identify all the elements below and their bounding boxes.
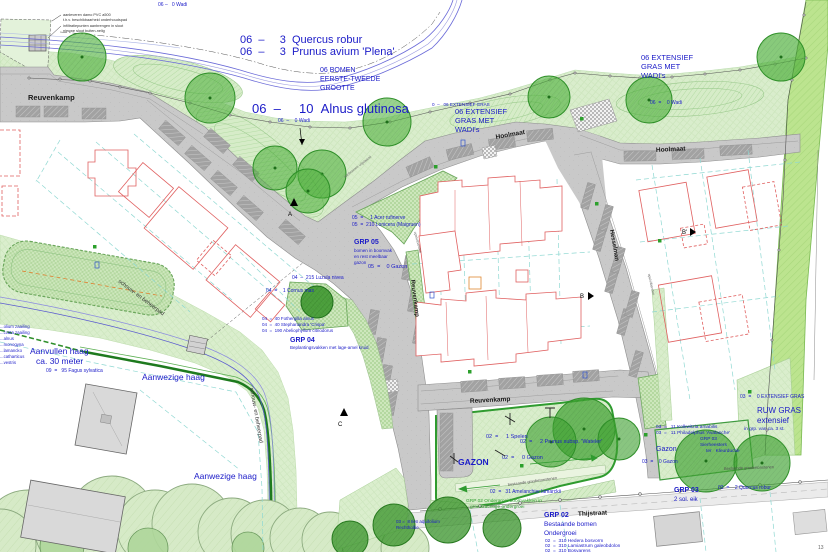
svg-text:GRAS MET: GRAS MET — [455, 116, 495, 125]
svg-text:Reuvenkamp: Reuvenkamp — [28, 93, 75, 102]
svg-text:gazon: gazon — [354, 260, 367, 265]
svg-text:...alnus: ...alnus — [0, 336, 14, 341]
svg-text:06 EXTENSIEF: 06 EXTENSIEF — [641, 53, 694, 62]
svg-text:...monogyna: ...monogyna — [0, 342, 24, 347]
svg-text:06 = 0 Wadi: 06 = 0 Wadi — [650, 100, 682, 106]
svg-text:09 = 95 Fagus sylvatica: 09 = 95 Fagus sylvatica — [46, 368, 103, 374]
svg-text:GRAS MET: GRAS MET — [641, 62, 681, 71]
svg-text:04 = 190 Abeliophyllum citri: 04 = 190 Abeliophyllum citriodorus — [262, 328, 334, 333]
svg-text:...vestris: ...vestris — [0, 360, 16, 365]
svg-text:06 – 3 Quercus robur: 06 – 3 Quercus robur — [240, 34, 363, 46]
svg-text:...ccata zaailing: ...ccata zaailing — [0, 330, 30, 335]
svg-text:03 = 11 Kolkwitzia amabilis: 03 = 11 Kolkwitzia amabilis — [656, 424, 718, 430]
svg-text:extensief: extensief — [757, 416, 790, 425]
svg-text:ca. 30 meter: ca. 30 meter — [36, 356, 83, 366]
svg-text:02 = 2 Prunus subsp. 'Wat: 02 = 2 Prunus subsp. 'Wateler' — [520, 439, 602, 445]
svg-text:03 = 11 Philadelphus 'Avala: 03 = 11 Philadelphus 'Avalanche' — [656, 430, 730, 436]
svg-text:Bestaande bomen: Bestaande bomen — [544, 521, 597, 528]
svg-text:Gazon: Gazon — [656, 446, 677, 453]
svg-text:GRP 02 Ondergroei boomvakken i: GRP 02 Ondergroei boomvakken in — [466, 498, 542, 504]
svg-text:06 – 0 Wadi: 06 – 0 Wadi — [278, 118, 310, 124]
svg-text:06 EXTENSIEF: 06 EXTENSIEF — [455, 107, 508, 116]
svg-text:B: B — [580, 294, 584, 300]
svg-text:03 = 0 EXTENSIEF GRAS: 03 = 0 EXTENSIEF GRAS — [740, 394, 805, 400]
svg-text:GRP 05: GRP 05 — [354, 239, 379, 246]
svg-text:13: 13 — [818, 545, 824, 551]
svg-text:06 – 10 Alnus glutinosa: 06 – 10 Alnus glutinosa — [252, 101, 410, 116]
svg-text:GROOTTE: GROOTTE — [320, 85, 355, 92]
svg-text:02 = 31 Amelanchier lamarck: 02 = 31 Amelanchier lamarckii — [490, 489, 561, 495]
svg-text:WADI's: WADI's — [455, 125, 480, 134]
svg-text:nieuwe sloot buiten-nelig: nieuwe sloot buiten-nelig — [63, 29, 105, 33]
svg-text:03 = 8 Ilex aquifolium: 03 = 8 Ilex aquifolium — [396, 519, 440, 524]
svg-text:A: A — [288, 212, 292, 218]
svg-text:06 – 0 Wadi: 06 – 0 Wadi — [158, 2, 187, 8]
svg-text:t.h.v. beschikbaarheid onderho: t.h.v. beschikbaarheid onderhoudspad — [63, 18, 127, 22]
svg-text:04 – 215 Luzula nivea: 04 – 215 Luzula nivea — [292, 275, 344, 281]
svg-text:05 = 210 Lonicera (Maigruen): 05 = 210 Lonicera (Maigruen) — [352, 222, 421, 228]
svg-text:03 = 2 Quercus robur: 03 = 2 Quercus robur — [718, 485, 771, 491]
svg-text:04 = 40 Fothergilla alnus: 04 = 40 Fothergilla alnus — [262, 316, 315, 321]
svg-text:GRP 03: GRP 03 — [700, 436, 717, 442]
svg-text:Aanwezige haag: Aanwezige haag — [142, 372, 205, 382]
svg-text:GRP 03: GRP 03 — [674, 487, 699, 494]
svg-text:02 = 0 Gazon: 02 = 0 Gazon — [502, 455, 543, 461]
svg-text:05 = 1 Acer rufinerve: 05 = 1 Acer rufinerve — [352, 215, 405, 221]
svg-text:...lamancko: ...lamancko — [0, 348, 23, 353]
svg-text:aanleveren damo PVC a500: aanleveren damo PVC a500 — [63, 13, 111, 17]
svg-text:Sierheesters: Sierheesters — [700, 442, 728, 448]
svg-text:en rest meelbaar: en rest meelbaar — [354, 254, 388, 259]
svg-text:02 = 310 Bosvarens: 02 = 310 Bosvarens — [545, 548, 591, 552]
svg-text:WADI's: WADI's — [641, 71, 666, 80]
svg-text:C: C — [338, 422, 343, 428]
svg-text:Aanwezige haag: Aanwezige haag — [194, 471, 257, 481]
svg-text:...olium zaailing: ...olium zaailing — [0, 324, 30, 329]
svg-text:bomen in boomvak: bomen in boomvak — [354, 248, 393, 253]
svg-text:RUW GRAS: RUW GRAS — [757, 406, 801, 415]
svg-text:Rechtholbe: Rechtholbe — [396, 525, 419, 530]
svg-text:04 = 1 Cornus mas: 04 = 1 Cornus mas — [266, 288, 314, 294]
svg-text:B': B' — [682, 230, 687, 236]
svg-text:infiltratiepunten aanbrengen i: infiltratiepunten aanbrengen in sloot — [63, 24, 124, 28]
svg-text:04 = 40 Stephanandra 'Crispa: 04 = 40 Stephanandra 'Crispa' — [262, 322, 325, 327]
svg-text:06 BOMEN: 06 BOMEN — [320, 67, 355, 74]
svg-text:05 = 0 Gazon: 05 = 0 Gazon — [368, 264, 407, 270]
svg-text:03 = 0 Gazon: 03 = 0 Gazon — [642, 459, 678, 465]
svg-text:groeikrachtige ondergroei: groeikrachtige ondergroei — [470, 504, 524, 510]
svg-text:GRP 02: GRP 02 — [544, 512, 569, 519]
svg-text:2 sol. eik: 2 sol. eik — [674, 497, 699, 503]
svg-text:06 – 3 Prunus avium 'Ple: 06 – 3 Prunus avium 'Plena' — [240, 46, 395, 58]
svg-text:Beplantingsvakken met lage-ame: Beplantingsvakken met lage-amel kruid — [290, 345, 369, 350]
svg-text:...catharticus: ...catharticus — [0, 354, 24, 359]
svg-text:GAZON: GAZON — [458, 457, 489, 467]
svg-text:in grp. van ca. 3 st.: in grp. van ca. 3 st. — [744, 426, 785, 432]
svg-text:Aanvullen haag: Aanvullen haag — [30, 346, 89, 356]
svg-text:GRP 04: GRP 04 — [290, 337, 315, 344]
svg-text:Ondergroei: Ondergroei — [544, 530, 577, 537]
svg-text:EERSTE-TWEEDE: EERSTE-TWEEDE — [320, 76, 381, 83]
svg-text:ter Kleurductie: ter Kleurductie — [706, 448, 740, 454]
